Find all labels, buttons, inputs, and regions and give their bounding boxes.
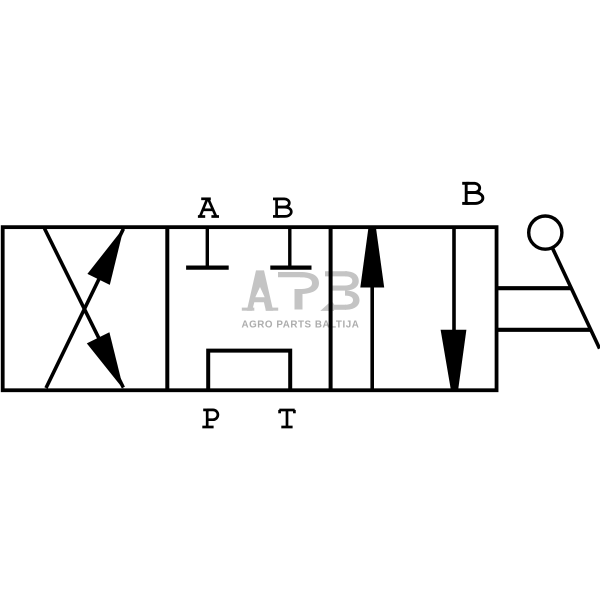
svg-text:AGRO PARTS BALTIJA: AGRO PARTS BALTIJA <box>242 320 360 331</box>
